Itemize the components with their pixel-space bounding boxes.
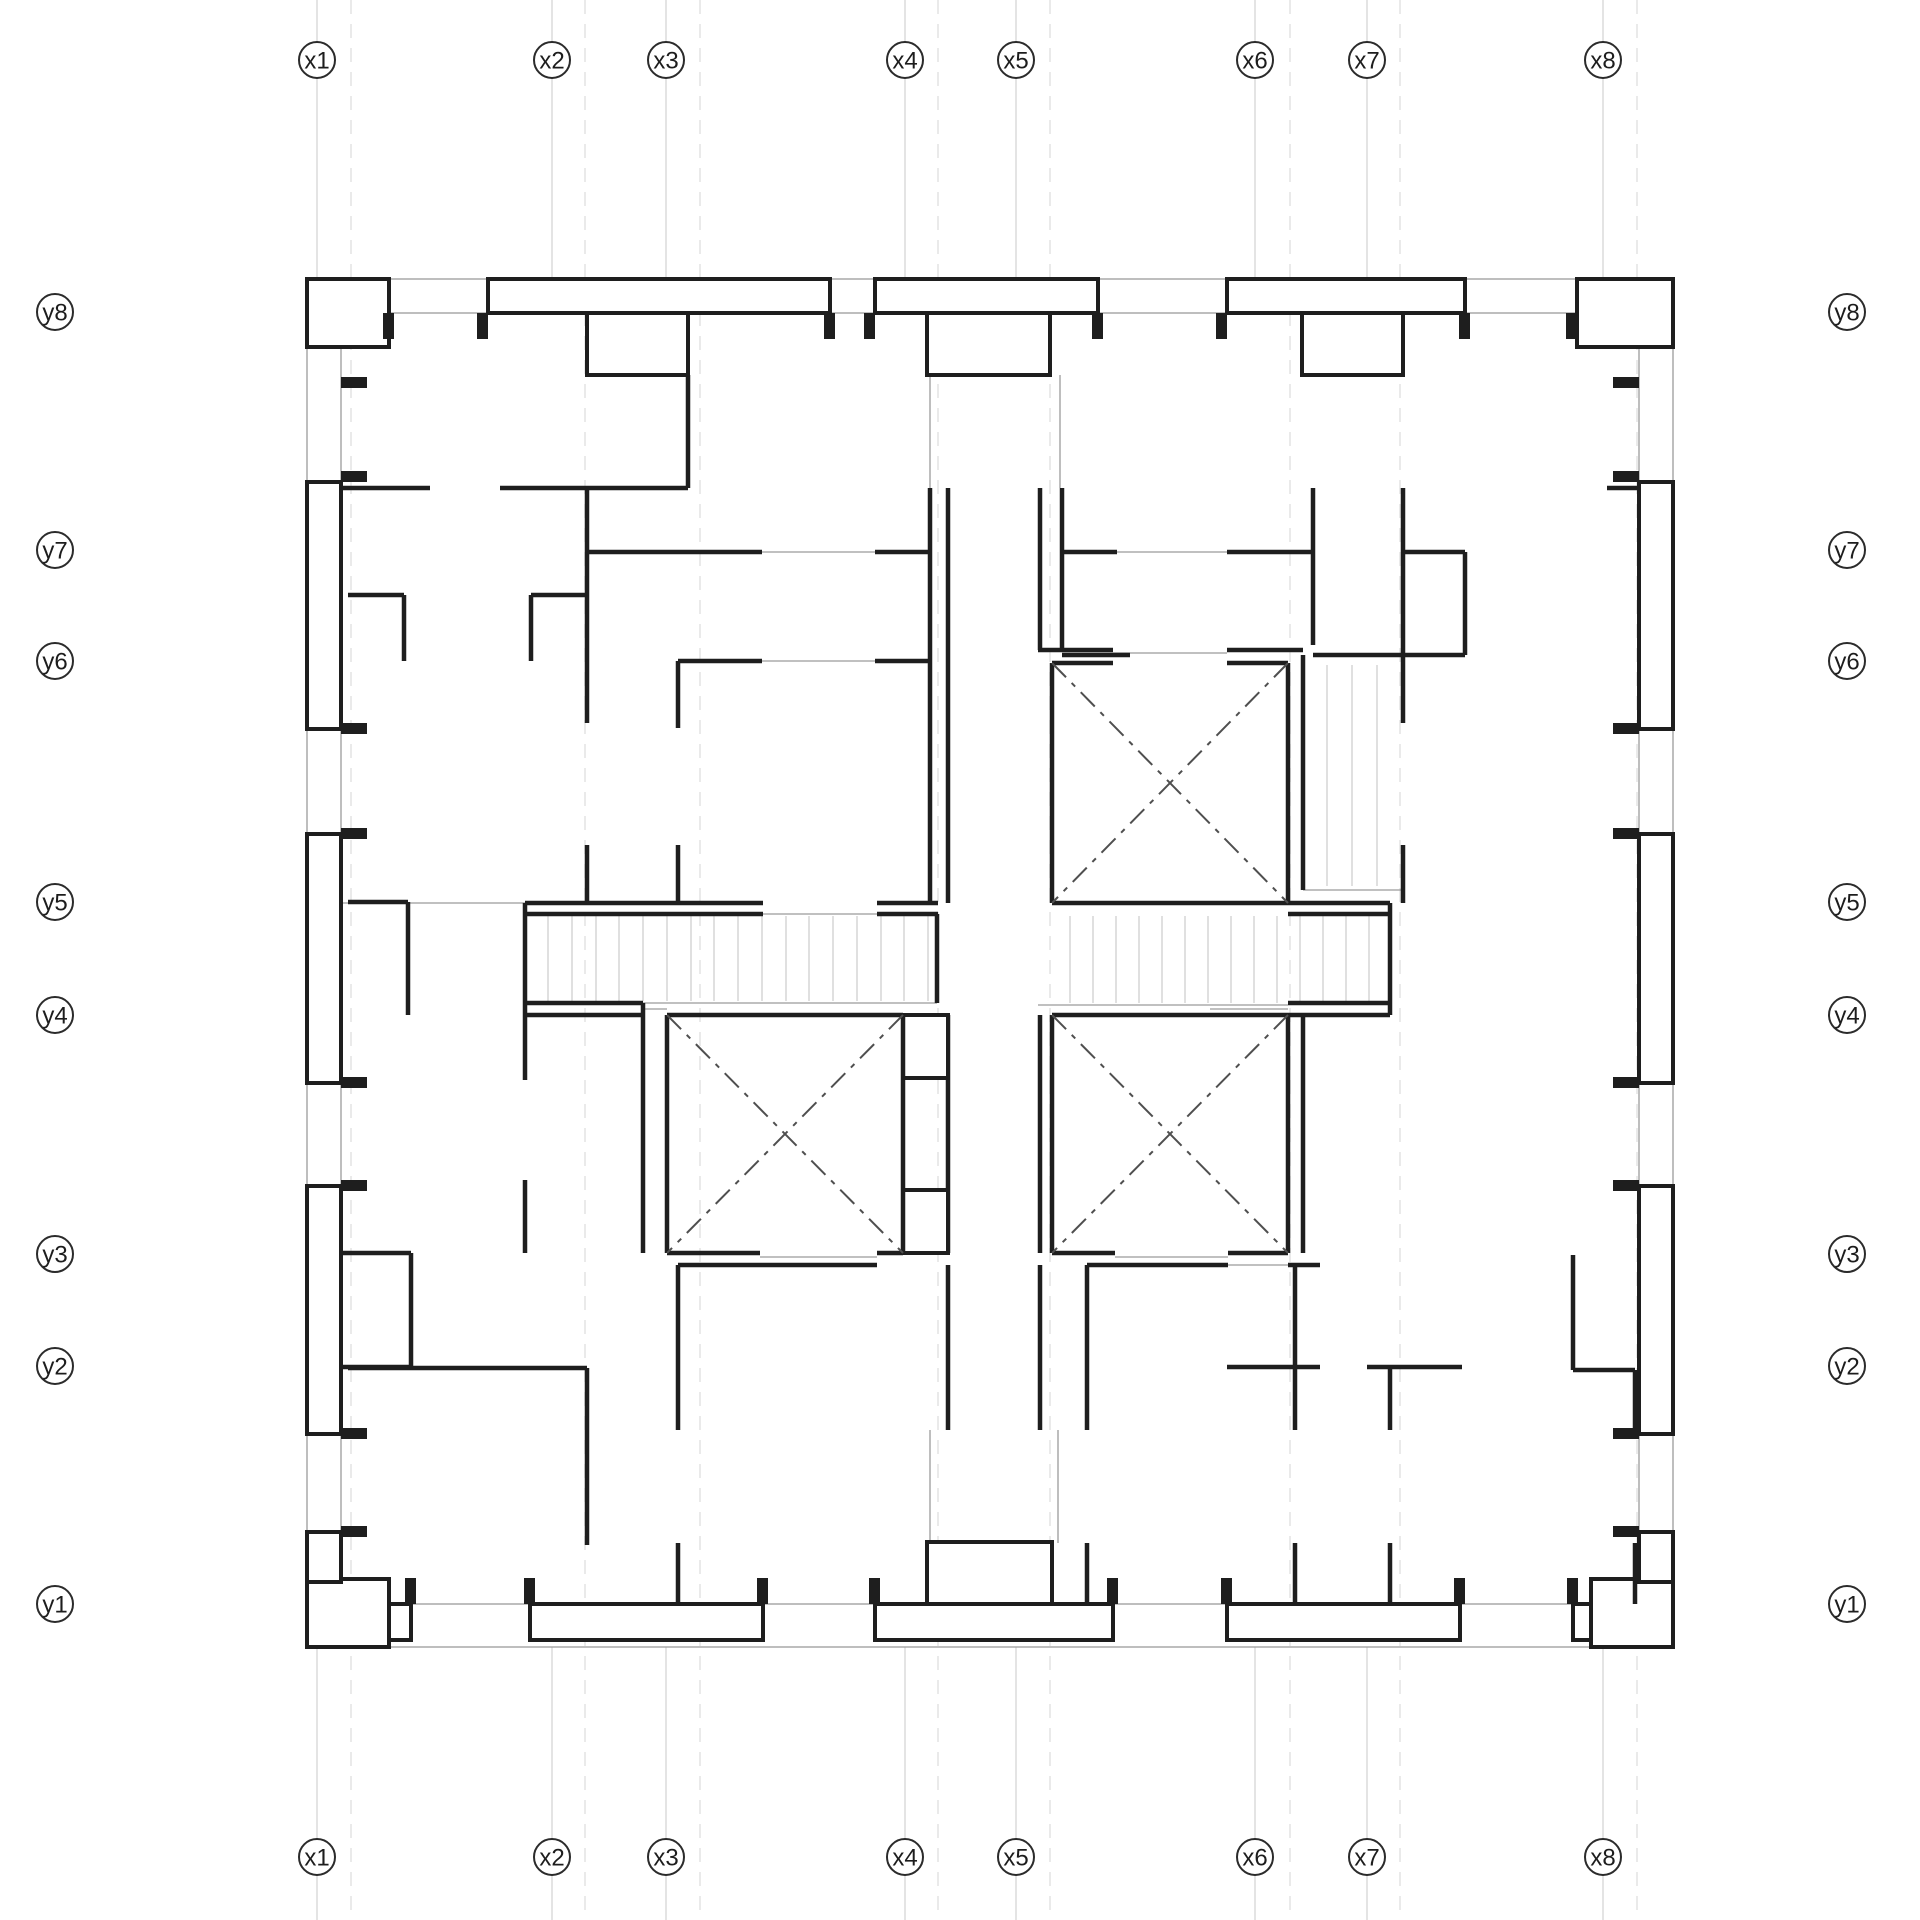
axis-label: x7 bbox=[1354, 48, 1379, 75]
axis-bubble-y6: y6 bbox=[1829, 643, 1865, 679]
axis-bubble-y3: y3 bbox=[37, 1236, 73, 1272]
axis-label: y1 bbox=[1834, 1592, 1859, 1619]
axis-bubble-x1: x1 bbox=[299, 1839, 335, 1875]
axis-bubble-x2: x2 bbox=[534, 42, 570, 78]
axis-label: x4 bbox=[892, 48, 917, 75]
elevator-shaft-upper-right bbox=[1052, 663, 1288, 903]
axis-bubble-x1: x1 bbox=[299, 42, 335, 78]
axis-label: y1 bbox=[42, 1592, 67, 1619]
axis-label: y7 bbox=[42, 538, 67, 565]
axis-bubble-x7: x7 bbox=[1349, 1839, 1385, 1875]
axis-bubble-y8: y8 bbox=[37, 294, 73, 330]
axis-label: y6 bbox=[1834, 649, 1859, 676]
axis-label: x5 bbox=[1003, 48, 1028, 75]
axis-bubble-y3: y3 bbox=[1829, 1236, 1865, 1272]
axis-bubble-y7: y7 bbox=[37, 532, 73, 568]
axis-label: y8 bbox=[42, 300, 67, 327]
axis-labels-bottom: x1 x2 x3 x4 x5 x6 x7 x8 bbox=[299, 1839, 1621, 1875]
axis-bubble-x6: x6 bbox=[1237, 1839, 1273, 1875]
axis-labels-top: x1 x2 x3 x4 x5 x6 x7 x8 bbox=[299, 42, 1621, 78]
axis-bubble-y6: y6 bbox=[37, 643, 73, 679]
axis-bubble-x5: x5 bbox=[998, 1839, 1034, 1875]
axis-label: y6 bbox=[42, 649, 67, 676]
axis-label: y8 bbox=[1834, 300, 1859, 327]
axis-bubble-x7: x7 bbox=[1349, 42, 1385, 78]
window-jamb-nibs bbox=[341, 313, 1639, 1604]
axis-label: y2 bbox=[1834, 1354, 1859, 1381]
axis-bubble-y5: y5 bbox=[1829, 884, 1865, 920]
axis-label: y3 bbox=[42, 1242, 67, 1269]
axis-label: y4 bbox=[1834, 1003, 1859, 1030]
slab-outline bbox=[307, 279, 1673, 1647]
axis-label: x3 bbox=[653, 1845, 678, 1872]
axis-label: x8 bbox=[1590, 1845, 1615, 1872]
axis-label: x4 bbox=[892, 1845, 917, 1872]
axis-bubble-x3: x3 bbox=[648, 42, 684, 78]
axis-bubble-x2: x2 bbox=[534, 1839, 570, 1875]
elevator-shaft-lower-left bbox=[667, 1015, 903, 1253]
axis-bubble-y4: y4 bbox=[37, 997, 73, 1033]
axis-label: y3 bbox=[1834, 1242, 1859, 1269]
axis-label: x7 bbox=[1354, 1845, 1379, 1872]
axis-label: x8 bbox=[1590, 48, 1615, 75]
elevator-shaft-lower-right bbox=[1052, 1015, 1288, 1253]
axis-labels-right: y8 y7 y6 y5 y4 y3 y2 y1 bbox=[1829, 294, 1865, 1622]
exterior-wall-blocks bbox=[307, 279, 1673, 1647]
axis-bubble-x8: x8 bbox=[1585, 1839, 1621, 1875]
axis-label: x5 bbox=[1003, 1845, 1028, 1872]
axis-label: x1 bbox=[304, 48, 329, 75]
axis-bubble-y1: y1 bbox=[1829, 1586, 1865, 1622]
axis-label: x6 bbox=[1242, 1845, 1267, 1872]
axis-bubble-x3: x3 bbox=[648, 1839, 684, 1875]
axis-label: x3 bbox=[653, 48, 678, 75]
axis-bubble-y5: y5 bbox=[37, 884, 73, 920]
axis-bubble-x4: x4 bbox=[887, 1839, 923, 1875]
axis-label: y5 bbox=[1834, 890, 1859, 917]
axis-bubble-y7: y7 bbox=[1829, 532, 1865, 568]
axis-bubble-x5: x5 bbox=[998, 42, 1034, 78]
axis-bubble-y1: y1 bbox=[37, 1586, 73, 1622]
axis-label: x2 bbox=[539, 48, 564, 75]
axis-bubble-x6: x6 bbox=[1237, 42, 1273, 78]
interior-walls bbox=[341, 375, 1639, 1604]
axis-bubble-y2: y2 bbox=[1829, 1348, 1865, 1384]
axis-label: x1 bbox=[304, 1845, 329, 1872]
axis-label: y2 bbox=[42, 1354, 67, 1381]
axis-label: x6 bbox=[1242, 48, 1267, 75]
upper-flight-treads bbox=[1327, 665, 1377, 886]
floor-plan-canvas: x1 x2 x3 x4 x5 x6 x7 x8 x1 x2 x3 x4 x5 x… bbox=[0, 0, 1920, 1920]
axis-bubble-y4: y4 bbox=[1829, 997, 1865, 1033]
axis-label: y7 bbox=[1834, 538, 1859, 565]
axis-bubble-y2: y2 bbox=[37, 1348, 73, 1384]
axis-label: x2 bbox=[539, 1845, 564, 1872]
axis-label: y5 bbox=[42, 890, 67, 917]
axis-bubble-x4: x4 bbox=[887, 42, 923, 78]
stair-right-treads bbox=[1070, 916, 1369, 1003]
axis-bubble-x8: x8 bbox=[1585, 42, 1621, 78]
axis-bubble-y8: y8 bbox=[1829, 294, 1865, 330]
axis-label: y4 bbox=[42, 1003, 67, 1030]
stair-left-treads bbox=[548, 916, 928, 1001]
axis-labels-left: y8 y7 y6 y5 y4 y3 y2 y1 bbox=[37, 294, 73, 1622]
